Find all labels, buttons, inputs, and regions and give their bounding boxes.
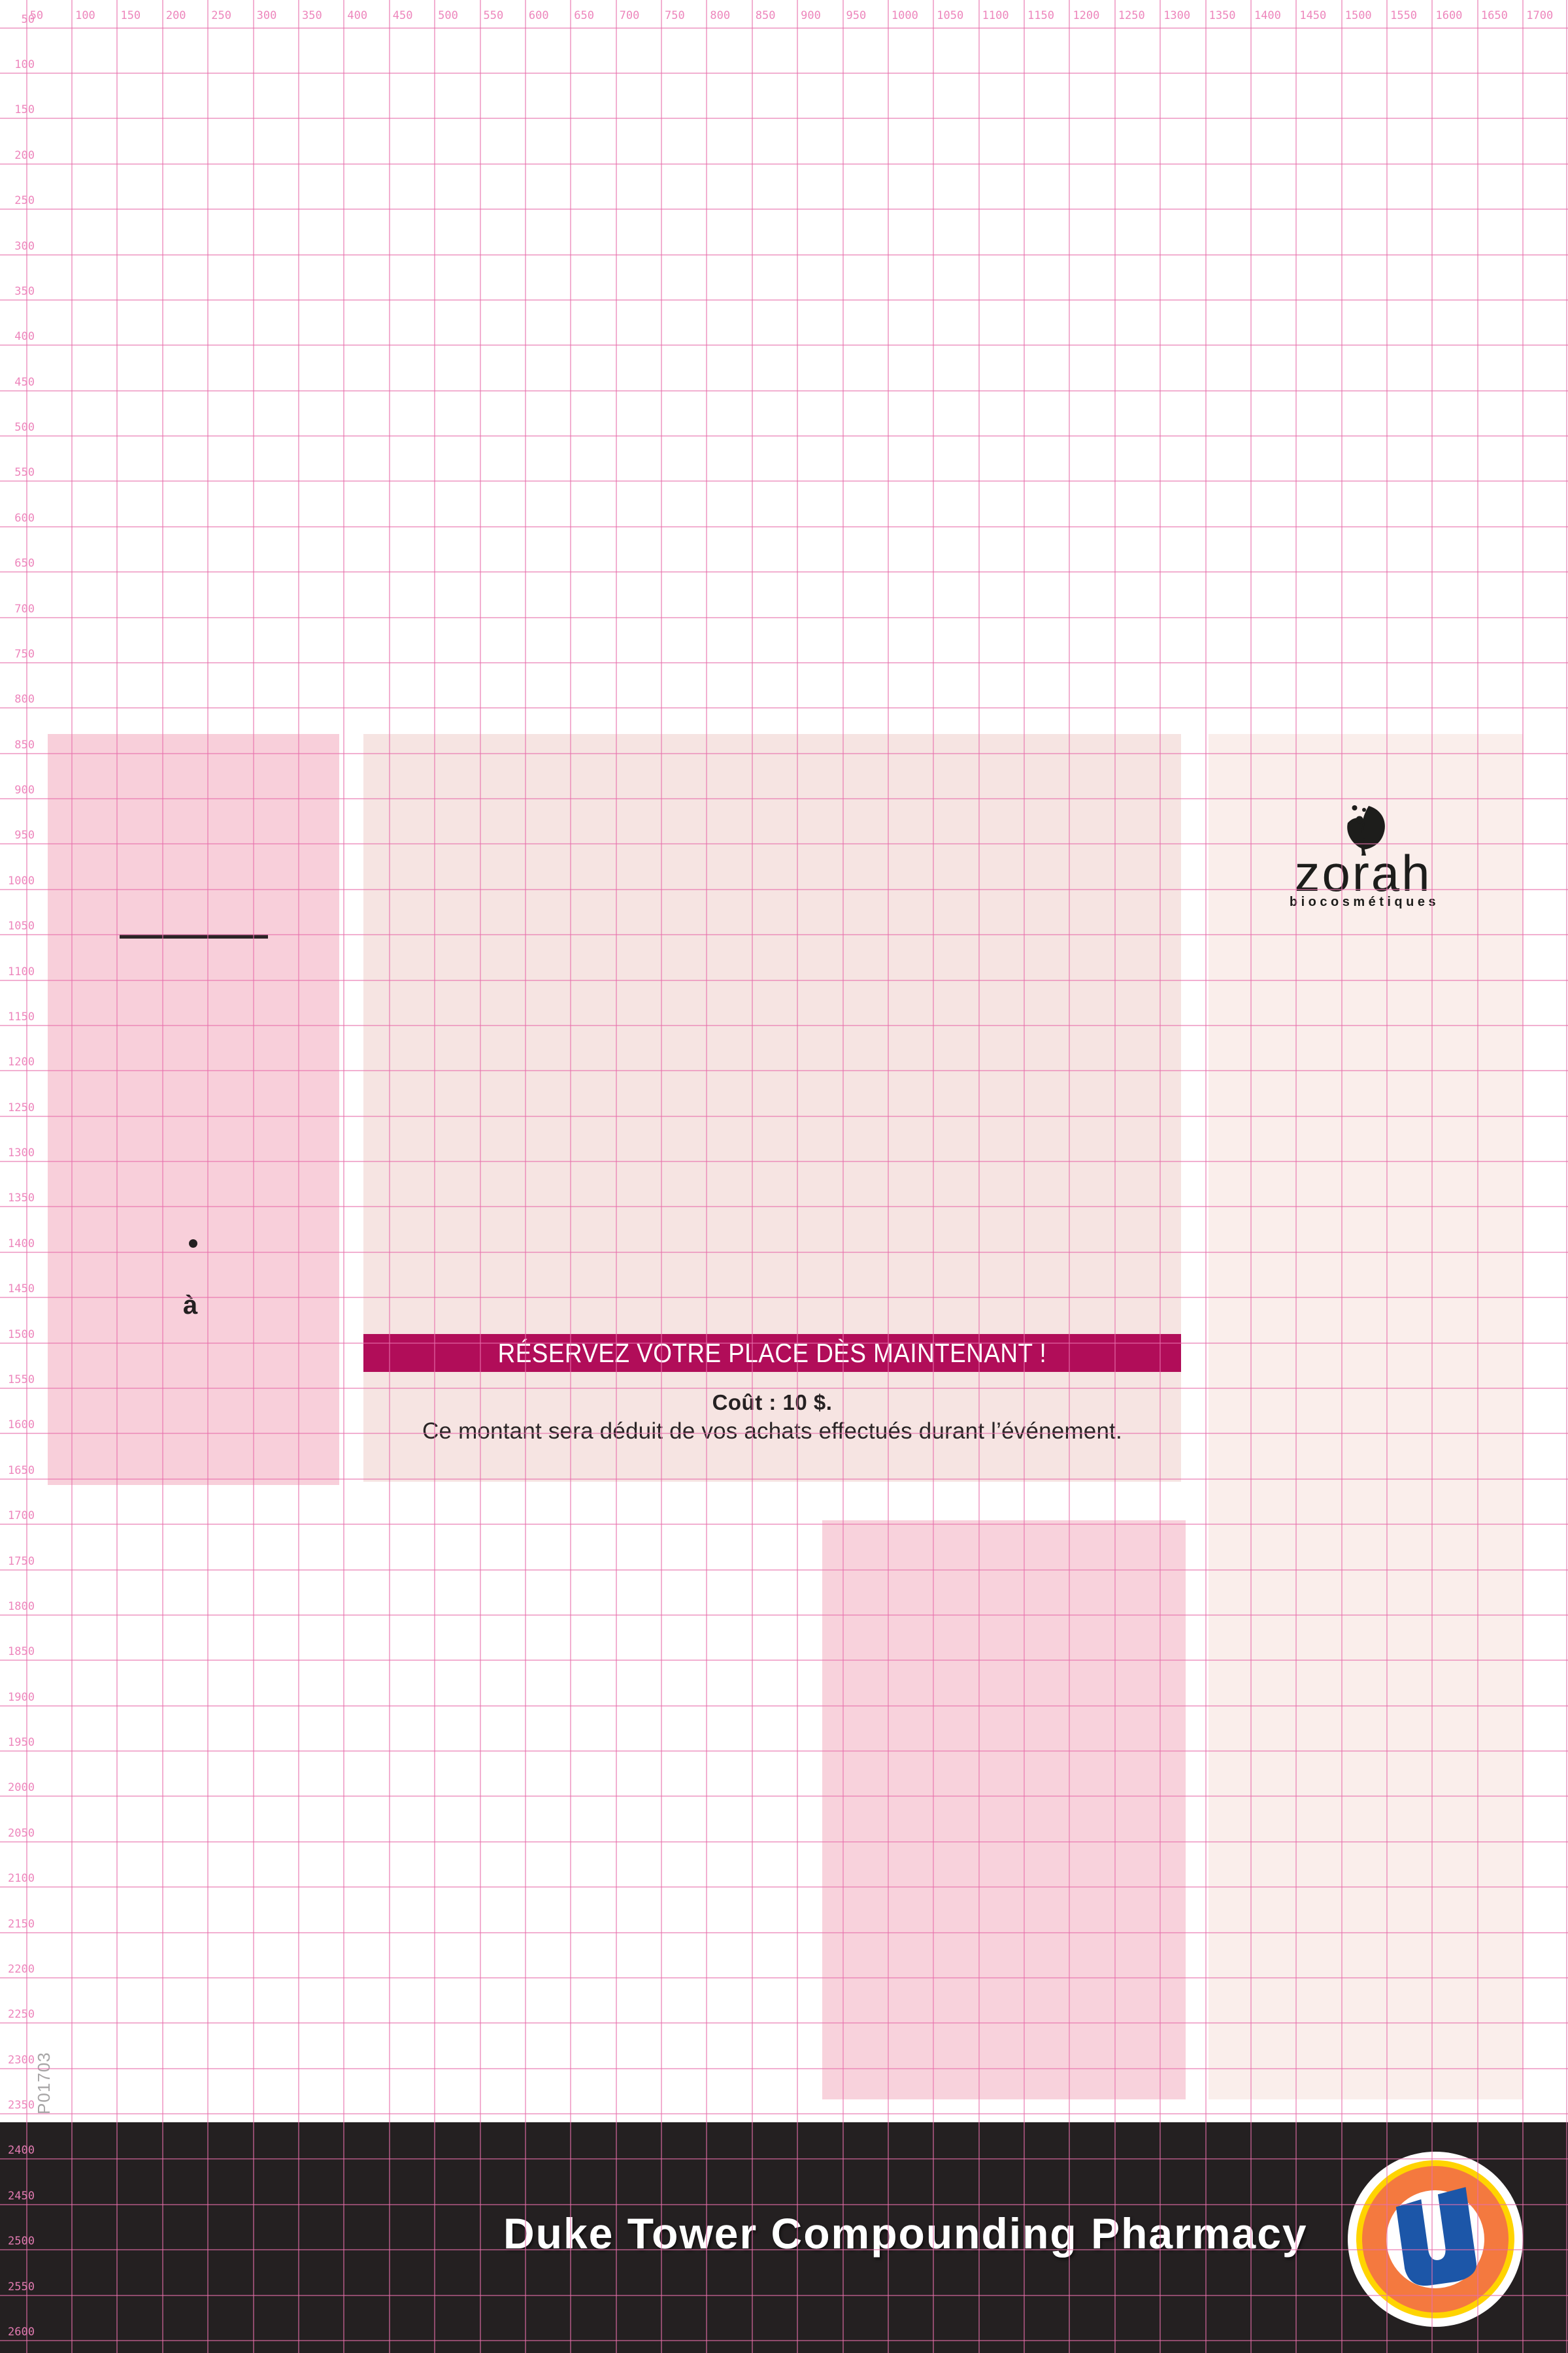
ruler-label-x: 1200 (1073, 10, 1099, 22)
cost-line: Coût : 10 $. (363, 1391, 1181, 1414)
grid-line-vertical (1205, 0, 1207, 2353)
ruler-label-y: 2300 (6, 2055, 35, 2066)
ruler-label-x: 1700 (1526, 10, 1553, 22)
cost-note-line: Ce montant sera déduit de vos achats eff… (265, 1418, 1279, 1444)
ruler-label-y: 200 (6, 150, 35, 161)
ruler-label-y: 1150 (6, 1012, 35, 1023)
ruler-label-x: 850 (756, 10, 776, 22)
ruler-label-x: 1400 (1254, 10, 1281, 22)
ruler-label-y: 500 (6, 422, 35, 433)
grid-line-horizontal (0, 617, 1568, 618)
ruler-label-y: 2200 (6, 1964, 35, 1975)
ruler-label-y: 800 (6, 694, 35, 705)
ruler-label-x: 800 (710, 10, 730, 22)
grid-line-horizontal (0, 526, 1568, 527)
reserve-banner: RÉSERVEZ VOTRE PLACE DÈS MAINTENANT ! (363, 1334, 1181, 1372)
ruler-label-x: 900 (801, 10, 821, 22)
ruler-label-y: 750 (6, 649, 35, 660)
ruler-label-y: 1450 (6, 1284, 35, 1295)
store-name: Duke Tower Compounding Pharmacy (503, 2212, 1308, 2255)
ruler-label-x: 1300 (1163, 10, 1190, 22)
grid-line-horizontal (0, 118, 1568, 119)
ruler-label-y: 2050 (6, 1828, 35, 1839)
u-letter-icon (1390, 2186, 1482, 2291)
grid-line-horizontal (0, 254, 1568, 256)
ruler-label-y: 1100 (6, 967, 35, 978)
ruler-label-x: 500 (438, 10, 458, 22)
pink-block-right-column (1209, 734, 1523, 2099)
ruler-label-x: 750 (665, 10, 685, 22)
ruler-label-y: 1350 (6, 1193, 35, 1204)
ruler-label-y: 1800 (6, 1601, 35, 1612)
ruler-label-y: 1050 (6, 921, 35, 932)
ruler-label-x: 1000 (892, 10, 918, 22)
grid-line-horizontal (0, 707, 1568, 709)
grid-line-horizontal (0, 2113, 1568, 2114)
ruler-label-x: 150 (120, 10, 141, 22)
ruler-label-x: 650 (574, 10, 594, 22)
reserve-banner-text: RÉSERVEZ VOTRE PLACE DÈS MAINTENANT ! (498, 1338, 1047, 1369)
ruler-label-y: 1550 (6, 1375, 35, 1386)
grid-line-horizontal (0, 480, 1568, 482)
ruler-label-x: 700 (620, 10, 640, 22)
grid-line-horizontal (0, 571, 1568, 573)
ruler-label-y: 350 (6, 286, 35, 297)
ruler-label-x: 1250 (1118, 10, 1145, 22)
ruler-label-x: 1150 (1027, 10, 1054, 22)
pharmacy-u-logo (1348, 2152, 1523, 2327)
ruler-label-x: 50 (30, 10, 43, 22)
zorah-tagline: biocosmétiques (1280, 895, 1446, 909)
ruler-label-y: 400 (6, 331, 35, 342)
ruler-label-y: 1850 (6, 1646, 35, 1658)
ruler-label-x: 200 (166, 10, 186, 22)
ruler-label-x: 1650 (1481, 10, 1508, 22)
ruler-label-y: 1700 (6, 1510, 35, 1522)
ruler-label-y: 450 (6, 377, 35, 388)
ruler-label-y: 550 (6, 467, 35, 478)
pink-block-bottom-middle (822, 1520, 1186, 2099)
ruler-label-y: 1200 (6, 1057, 35, 1068)
grid-line-horizontal (0, 299, 1568, 301)
ruler-label-y: 850 (6, 740, 35, 751)
grid-line-horizontal (0, 27, 1568, 29)
ruler-label-y: 1000 (6, 876, 35, 887)
ruler-label-y: 300 (6, 241, 35, 252)
grid-line-horizontal (0, 209, 1568, 210)
ruler-label-y: 1600 (6, 1420, 35, 1431)
grid-line-horizontal (0, 344, 1568, 346)
list-bullet-dot (189, 1239, 197, 1248)
production-code: P01703 (35, 2056, 52, 2114)
a-text-fragment: à (183, 1292, 197, 1318)
ruler-label-y: 1900 (6, 1692, 35, 1703)
ruler-label-y: 2100 (6, 1873, 35, 1884)
grid-line-horizontal (0, 662, 1568, 663)
grid-line-vertical (26, 0, 27, 2353)
grid-line-vertical (343, 0, 344, 2353)
ruler-label-x: 1550 (1390, 10, 1417, 22)
ruler-label-x: 550 (484, 10, 504, 22)
ruler-label-y: 1400 (6, 1239, 35, 1250)
ruler-label-y: 1300 (6, 1148, 35, 1159)
ruler-label-y: 1950 (6, 1737, 35, 1748)
ruler-label-y: 2000 (6, 1782, 35, 1794)
ruler-label-x: 1450 (1299, 10, 1326, 22)
ruler-label-x: 1350 (1209, 10, 1236, 22)
ruler-label-x: 100 (75, 10, 95, 22)
ruler-label-x: 400 (347, 10, 367, 22)
ruler-label-y: 1650 (6, 1465, 35, 1477)
grid-line-horizontal (0, 390, 1568, 392)
ruler-label-x: 450 (393, 10, 413, 22)
ruler-label-y: 150 (6, 105, 35, 116)
grid-line-horizontal (0, 435, 1568, 437)
ruler-label-y: 900 (6, 785, 35, 796)
ruler-label-x: 350 (302, 10, 322, 22)
ruler-label-y: 2250 (6, 2009, 35, 2020)
ruler-label-x: 950 (846, 10, 867, 22)
ruler-label-x: 1600 (1435, 10, 1462, 22)
grid-line-horizontal (0, 73, 1568, 74)
ruler-label-x: 1500 (1345, 10, 1372, 22)
ruler-label-y: 700 (6, 604, 35, 615)
ruler-label-y: 1500 (6, 1329, 35, 1341)
ruler-label-y: 50 (6, 14, 35, 25)
grid-line-horizontal (0, 163, 1568, 165)
ruler-label-y: 650 (6, 558, 35, 569)
ruler-label-y: 2350 (6, 2100, 35, 2111)
ruler-label-x: 1100 (982, 10, 1009, 22)
ruler-label-y: 100 (6, 59, 35, 71)
ruler-label-y: 1750 (6, 1556, 35, 1567)
ruler-label-x: 250 (211, 10, 231, 22)
zorah-wordmark: zorah (1280, 848, 1446, 899)
grid-line-vertical (1566, 0, 1567, 2353)
ruler-label-x: 600 (529, 10, 549, 22)
ruler-label-y: 1250 (6, 1103, 35, 1114)
ruler-label-y: 600 (6, 513, 35, 524)
ruler-label-y: 950 (6, 830, 35, 841)
ruler-label-x: 300 (257, 10, 277, 22)
ruler-label-y: 250 (6, 195, 35, 207)
ruler-label-x: 1050 (937, 10, 963, 22)
ruler-label-y: 2150 (6, 1919, 35, 1930)
divider-rule (120, 935, 268, 939)
pink-block-left (48, 734, 339, 1485)
